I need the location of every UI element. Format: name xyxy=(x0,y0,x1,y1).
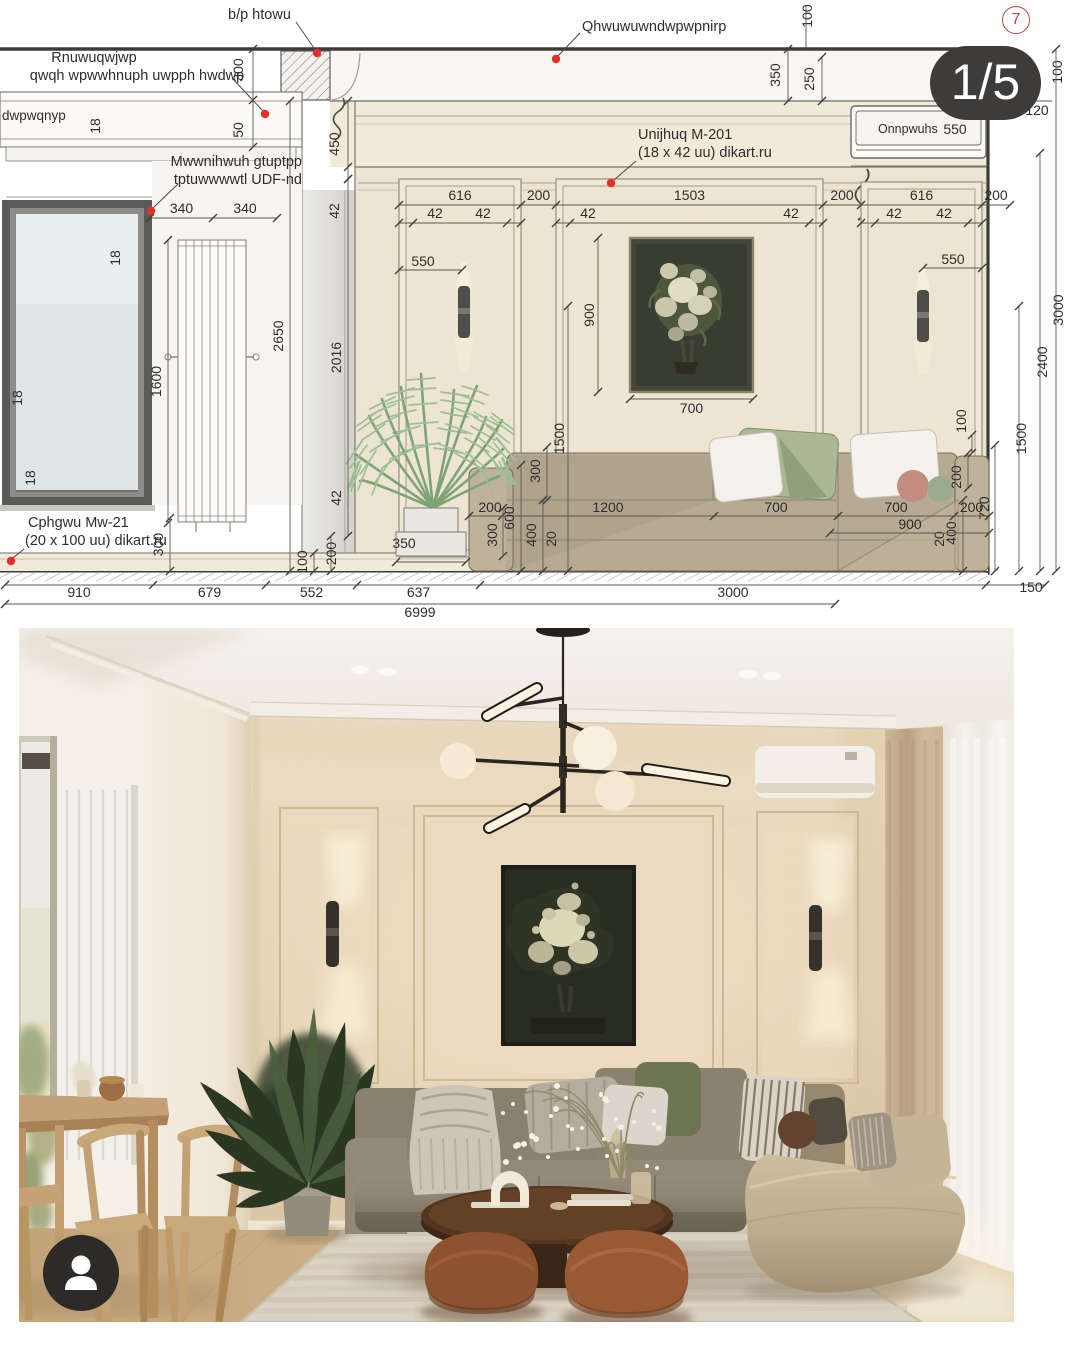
svg-text:42: 42 xyxy=(326,203,342,219)
svg-text:637: 637 xyxy=(407,584,431,600)
svg-text:350: 350 xyxy=(392,535,416,551)
svg-text:42: 42 xyxy=(475,205,491,221)
svg-text:200: 200 xyxy=(323,542,339,566)
svg-text:(20 x 100 uu) dikart.ru: (20 x 100 uu) dikart.ru xyxy=(25,533,167,549)
svg-text:Cphgwu Mw-21: Cphgwu Mw-21 xyxy=(28,515,129,531)
svg-text:900: 900 xyxy=(898,516,922,532)
svg-text:100: 100 xyxy=(953,409,969,433)
svg-text:42: 42 xyxy=(936,205,952,221)
svg-text:Onnpwuhs: Onnpwuhs xyxy=(878,122,938,136)
svg-text:700: 700 xyxy=(764,499,788,515)
svg-text:Mwwnihwuh gtuptpp: Mwwnihwuh gtuptpp xyxy=(171,154,302,170)
svg-text:700: 700 xyxy=(884,499,908,515)
svg-text:450: 450 xyxy=(326,132,342,156)
svg-text:679: 679 xyxy=(198,584,222,600)
svg-text:42: 42 xyxy=(886,205,902,221)
svg-text:1600: 1600 xyxy=(148,366,164,397)
svg-text:50: 50 xyxy=(230,122,246,138)
svg-text:6999: 6999 xyxy=(404,604,435,620)
svg-text:200: 200 xyxy=(478,499,502,515)
svg-text:2016: 2016 xyxy=(328,342,344,373)
svg-text:350: 350 xyxy=(767,63,783,87)
svg-text:616: 616 xyxy=(448,187,472,203)
svg-text:150: 150 xyxy=(1019,579,1043,595)
svg-text:Rnuwuqwjwp: Rnuwuqwjwp xyxy=(51,50,136,66)
svg-text:2650: 2650 xyxy=(270,320,286,351)
svg-text:900: 900 xyxy=(581,303,597,327)
svg-text:1500: 1500 xyxy=(551,423,567,454)
svg-text:550: 550 xyxy=(411,253,435,269)
svg-text:300: 300 xyxy=(527,459,543,483)
svg-text:700: 700 xyxy=(680,400,704,416)
svg-text:100: 100 xyxy=(294,550,310,574)
svg-text:42: 42 xyxy=(427,205,443,221)
svg-text:200: 200 xyxy=(948,465,964,489)
svg-text:910: 910 xyxy=(67,584,91,600)
svg-text:200: 200 xyxy=(960,499,984,515)
svg-text:b/p htowu: b/p htowu xyxy=(228,7,291,23)
svg-text:550: 550 xyxy=(941,251,965,267)
svg-text:100: 100 xyxy=(799,4,815,28)
svg-text:250: 250 xyxy=(801,67,817,91)
svg-text:42: 42 xyxy=(580,205,596,221)
svg-text:1200: 1200 xyxy=(592,499,623,515)
svg-text:552: 552 xyxy=(300,584,324,600)
svg-text:1503: 1503 xyxy=(674,187,705,203)
svg-text:100: 100 xyxy=(1049,60,1065,84)
svg-text:18: 18 xyxy=(107,250,123,266)
svg-text:Qhwuwuwndwpwpnirp: Qhwuwuwndwpwpnirp xyxy=(582,19,726,35)
svg-text:340: 340 xyxy=(170,200,194,216)
svg-text:18: 18 xyxy=(87,118,103,134)
svg-text:200: 200 xyxy=(527,187,551,203)
svg-text:20: 20 xyxy=(543,531,559,547)
svg-text:200: 200 xyxy=(830,187,854,203)
svg-text:616: 616 xyxy=(910,187,934,203)
svg-text:3000: 3000 xyxy=(717,584,748,600)
svg-text:18: 18 xyxy=(9,390,25,406)
svg-text:400: 400 xyxy=(523,523,539,547)
svg-text:340: 340 xyxy=(233,200,257,216)
svg-text:42: 42 xyxy=(783,205,799,221)
svg-text:2400: 2400 xyxy=(1034,346,1050,377)
svg-text:1500: 1500 xyxy=(1013,423,1029,454)
svg-text:18: 18 xyxy=(22,470,38,486)
svg-text:550: 550 xyxy=(943,121,967,137)
svg-text:42: 42 xyxy=(328,490,344,506)
svg-text:tptuwwwwtl UDF-nd: tptuwwwwtl UDF-nd xyxy=(174,172,302,188)
svg-text:300: 300 xyxy=(484,523,500,547)
svg-text:qwqh wpwwhnuph uwpph hwdwp: qwqh wpwwhnuph uwpph hwdwp xyxy=(30,68,244,84)
svg-text:dwpwqnyp: dwpwqnyp xyxy=(2,108,66,123)
svg-text:(18 x 42 uu) dikart.ru: (18 x 42 uu) dikart.ru xyxy=(638,145,772,161)
svg-text:3000: 3000 xyxy=(1050,294,1066,325)
svg-text:200: 200 xyxy=(984,187,1008,203)
svg-text:Unijhuq M-201: Unijhuq M-201 xyxy=(638,127,732,143)
